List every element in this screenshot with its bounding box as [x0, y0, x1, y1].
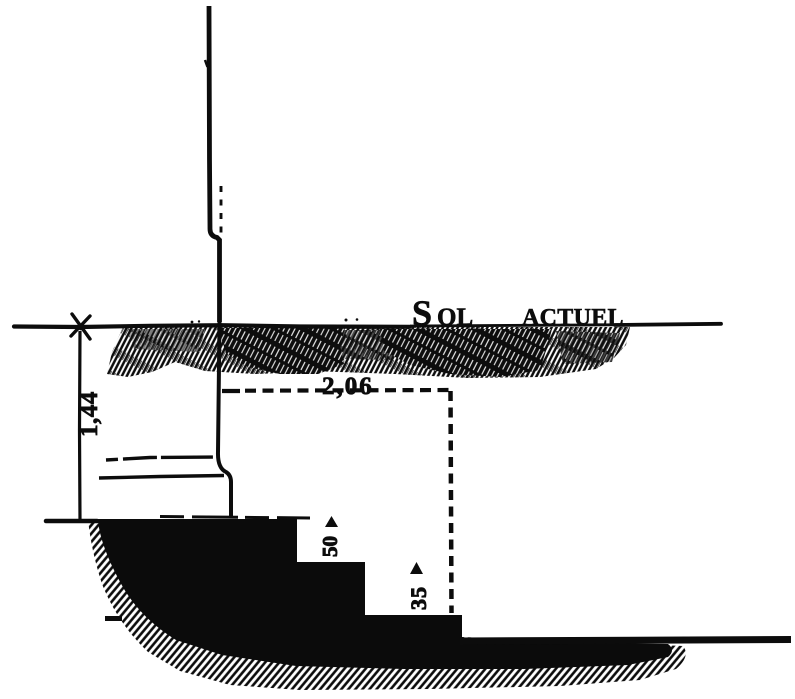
svg-text:S: S [412, 293, 432, 333]
svg-text:35: 35 [406, 586, 431, 610]
svg-text:ACTUEL: ACTUEL [522, 305, 624, 331]
svg-text:1,44: 1,44 [76, 391, 103, 437]
svg-text:2,06: 2,06 [322, 373, 374, 400]
svg-text:OL: OL [437, 304, 473, 331]
svg-text:50: 50 [318, 536, 342, 557]
